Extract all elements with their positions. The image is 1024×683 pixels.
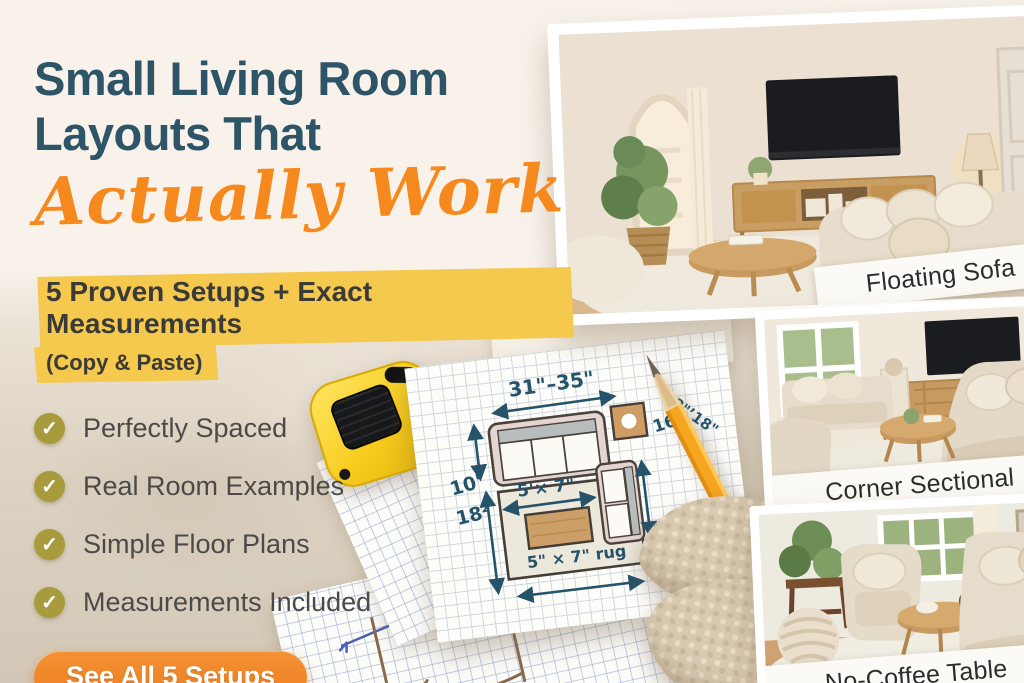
checklist-item: ✓ Measurements Included [34,587,574,618]
photo-card-corner-sectional: Corner Sectional [755,295,1024,523]
pin-graphic: 31"–35" 16" 18"’18" 10' 18² 5'× 7" 5" × … [0,0,1024,683]
content-column: Small Living Room Layouts That Actually … [34,52,574,683]
check-icon: ✓ [34,471,65,502]
highlight-banner-line1: 5 Proven Setups + Exact Measurements [34,267,574,349]
check-icon: ✓ [34,587,65,618]
photo-card-no-coffee-table: No-Coffee Table [749,492,1024,683]
checklist-item-label: Real Room Examples [83,471,344,502]
checklist-item-label: Measurements Included [83,587,371,618]
checklist-item: ✓ Real Room Examples [34,471,574,502]
checklist-item: ✓ Simple Floor Plans [34,529,574,560]
headline-script: Actually Work [33,149,575,241]
check-icon: ✓ [34,413,65,444]
check-icon: ✓ [34,529,65,560]
photo-label-text: No-Coffee Table [824,654,1008,683]
photo-label-text: Floating Sofa [864,253,1016,298]
headline-line1: Small Living Room [34,52,574,107]
photo-card-floating-sofa: Floating Sofa [547,4,1024,326]
benefits-checklist: ✓ Perfectly Spaced ✓ Real Room Examples … [34,413,574,618]
highlight-banner-line2: (Copy & Paste) [34,345,218,383]
checklist-item-label: Perfectly Spaced [83,413,287,444]
checklist-item: ✓ Perfectly Spaced [34,413,574,444]
see-all-setups-button[interactable]: See All 5 Setups [34,651,307,683]
headline: Small Living Room Layouts That [34,52,574,161]
checklist-item-label: Simple Floor Plans [83,529,310,560]
